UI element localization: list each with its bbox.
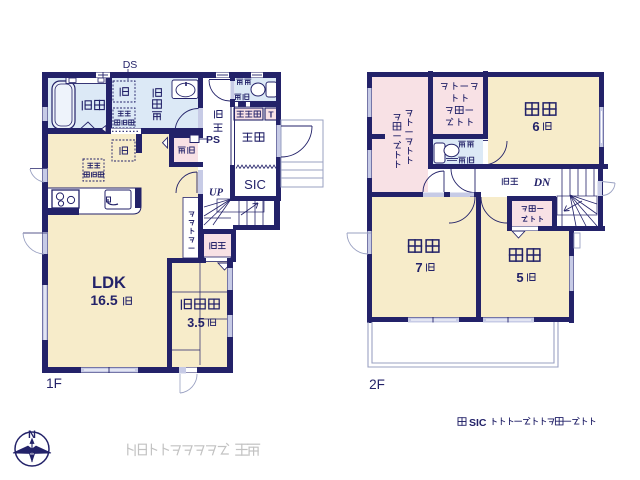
svg-text:DS: DS <box>123 59 138 71</box>
svg-text:1F: 1F <box>46 376 62 391</box>
svg-text:16.5: 16.5 <box>90 292 117 308</box>
svg-text:LDK: LDK <box>92 274 126 292</box>
svg-text:7: 7 <box>415 260 422 275</box>
svg-text:2F: 2F <box>369 377 385 392</box>
svg-text:6: 6 <box>532 119 539 134</box>
svg-text:T: T <box>268 110 274 120</box>
svg-text:UP: UP <box>209 188 224 199</box>
svg-text:SIC: SIC <box>244 177 266 192</box>
svg-text:SIC: SIC <box>469 417 487 429</box>
svg-text:3.5: 3.5 <box>187 316 204 330</box>
svg-text:PS: PS <box>206 134 220 146</box>
svg-text:5: 5 <box>516 270 523 285</box>
svg-text:DN: DN <box>533 177 551 189</box>
